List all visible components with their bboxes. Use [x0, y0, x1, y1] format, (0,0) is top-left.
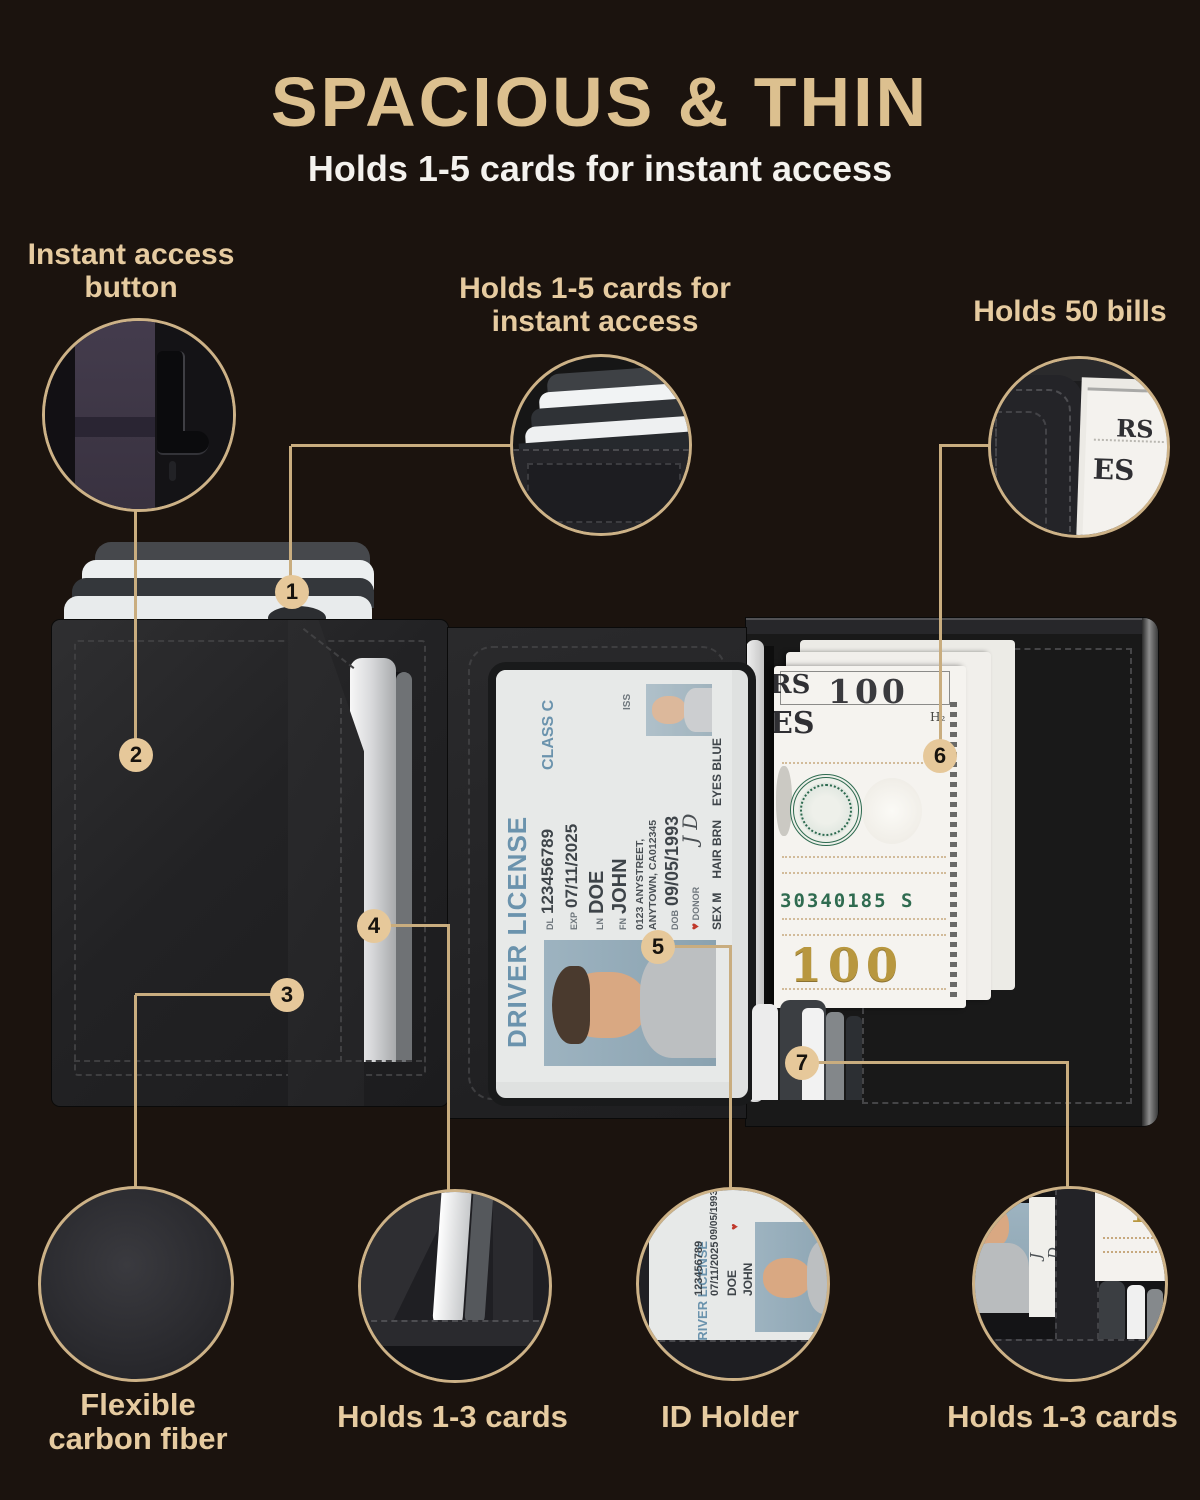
callout-holds-50-bills-label: Holds 50 bills: [930, 295, 1200, 328]
bill-script-line: [782, 762, 942, 764]
frag-card-gray: [1147, 1289, 1163, 1341]
bill-fragment-rs: RS: [774, 670, 810, 700]
frag-bill: 10: [1095, 1189, 1168, 1281]
zoom-bubble-instant-access: [42, 318, 236, 512]
connector-4-v: [447, 926, 450, 1191]
wallet-purple-spine: [75, 318, 157, 512]
badge-5: 5: [641, 930, 675, 964]
license-card: DRIVER LICENSE CLASS C DL 123456789 EXP …: [496, 670, 732, 1082]
connector-7-h: [802, 1061, 1069, 1064]
badge-2: 2: [119, 738, 153, 772]
callout-holds-1-5-label: Holds 1-5 cards for instant access: [420, 272, 770, 338]
corner-bill-es: ES: [1092, 453, 1135, 487]
bubble-edge-dark: [45, 321, 79, 509]
badge-6: 6: [923, 739, 957, 773]
license-ghost-photo: [646, 684, 712, 736]
license-dl-field: DL 123456789: [538, 829, 558, 930]
connector-3-h: [135, 993, 287, 996]
photo-hair: [552, 966, 590, 1044]
wallet-infographic: SPACIOUS & THIN Holds 1-5 cards for inst…: [0, 0, 1200, 1500]
bill-denomination-top: 100: [828, 672, 909, 711]
pocket-bottom-stitch: [74, 1060, 422, 1065]
frag-bill-line: [1103, 1237, 1168, 1239]
right-panel-top-plate: [746, 618, 1142, 634]
bill-script-line: [782, 934, 946, 936]
mini-donor-heart-icon: ♥: [729, 1223, 741, 1230]
access-button-lever: [157, 351, 185, 443]
bill-script-line: [782, 856, 946, 858]
wallet-left-flap: [52, 620, 448, 1106]
ghost-face: [652, 696, 686, 724]
mini-license: DRIVER LICENSE 123456789 07/11/2025 DOE …: [649, 1187, 830, 1360]
bill-denomination-gold: 100: [790, 938, 904, 992]
mini-license-ln: DOE: [725, 1270, 739, 1296]
connector-1-v: [289, 446, 292, 592]
bill-fragment-es: ES: [774, 706, 815, 741]
license-exp-field: EXP 07/11/2025: [562, 824, 582, 930]
license-photo: [544, 940, 716, 1066]
zoom-bubble-bills-corner: RS ES: [988, 356, 1170, 538]
license-bottom-strip: SEX M HAIR BRN EYES BLUE: [710, 738, 724, 930]
mini-license-dob: 09/05/1993: [709, 1190, 720, 1240]
license-window: DRIVER LICENSE CLASS C DL 123456789 EXP …: [488, 662, 756, 1106]
fan-pocket-stitch: [527, 463, 681, 523]
frag-shirt: [972, 1243, 1029, 1313]
access-button-foot: [157, 431, 209, 455]
license-class: CLASS C: [540, 700, 558, 770]
bill-watermark-oval: [862, 778, 922, 844]
zoom-bubble-id-holder: DRIVER LICENSE 123456789 07/11/2025 DOE …: [636, 1187, 830, 1381]
zoom-bubble-card-fan: [510, 354, 692, 536]
bill-pillar-left: [776, 766, 792, 836]
license-donor: ♥ DONOR: [688, 887, 702, 930]
frag-card-white2: [1127, 1285, 1145, 1341]
access-button-stem: [169, 461, 176, 481]
connector-2-v: [134, 503, 137, 755]
page-title: SPACIOUS & THIN: [0, 62, 1200, 142]
connector-7-v: [1066, 1063, 1069, 1188]
bill-script-line: [782, 872, 946, 874]
badge-4: 4: [357, 909, 391, 943]
mini-license-dl: 123456789: [693, 1241, 705, 1296]
frag-card-dark: [1099, 1281, 1125, 1341]
connector-6-h: [939, 444, 991, 447]
frag-bill-line2: [1103, 1251, 1168, 1253]
zoom-bubble-card-slot: [358, 1189, 552, 1383]
frag-face: [979, 1207, 1009, 1247]
right-pocket-card-5: [846, 1016, 862, 1100]
license-signature: J D: [678, 814, 702, 844]
slot-below-dark: [361, 1346, 549, 1383]
corner-bill-front: RS ES: [1082, 387, 1170, 538]
license-address: 0123 ANYSTREET, ANYTOWN, CA012345: [634, 820, 660, 930]
ghost-shirt: [684, 688, 712, 732]
badge-3: 3: [270, 978, 304, 1012]
callout-holds-1-3-right-label: Holds 1-3 cards: [920, 1400, 1200, 1434]
treasury-seal-icon: [790, 774, 862, 846]
bill-h2-mark: H₂: [930, 710, 945, 724]
corner-stitch-inner: [995, 411, 1047, 538]
connector-5-v: [729, 947, 732, 1189]
badge-1: 1: [275, 575, 309, 609]
frag-card-white: J D: [1029, 1197, 1055, 1317]
frag-leather-strip: [1055, 1189, 1099, 1339]
wallet-center-panel: DRIVER LICENSE CLASS C DL 123456789 EXP …: [448, 628, 746, 1118]
mini-license-exp: 07/11/2025: [709, 1242, 721, 1296]
callout-id-holder-label: ID Holder: [640, 1400, 820, 1434]
connector-1-h: [291, 444, 513, 447]
right-pocket-card-4: [826, 1012, 844, 1100]
connector-6-v: [939, 446, 942, 756]
pocket-gray-card: [396, 672, 412, 1062]
mini-shirt: [807, 1240, 830, 1314]
license-ln-field: LN DOE: [586, 871, 609, 930]
zoom-bubble-carbon-fiber: [38, 1186, 234, 1382]
callout-holds-1-3-left-label: Holds 1-3 cards: [310, 1400, 595, 1434]
id-holder-leather-band: [639, 1340, 827, 1381]
callout-flexible-label: Flexible carbon fiber: [0, 1388, 276, 1456]
bill-serial-number: 30340185 S: [780, 890, 914, 912]
pocket-edge-stitch-v: [340, 698, 345, 1062]
page-subtitle: Holds 1-5 cards for instant access: [0, 148, 1200, 190]
license-fn-field: FN JOHN: [609, 858, 632, 930]
callout-instant-access-label: Instant access button: [0, 238, 262, 304]
mini-license-fn: JOHN: [741, 1263, 755, 1296]
slot-dark-bg: [493, 1189, 533, 1324]
bill-front: RS 100 ES H₂ 30340185 S 100: [774, 666, 966, 1008]
license-title: DRIVER LICENSE: [502, 816, 533, 1048]
mini-face: [763, 1258, 811, 1298]
frag-bill-gold: 10: [1129, 1195, 1168, 1230]
frag-id-photo: [972, 1203, 1031, 1313]
bill-script-line: [782, 918, 946, 920]
metal-frame-edge: [1142, 618, 1158, 1126]
license-iss: ISS: [622, 694, 633, 710]
purple-band: [75, 417, 157, 437]
zoom-bubble-bills-cards: J D 10: [972, 1186, 1168, 1382]
badge-7: 7: [785, 1046, 819, 1080]
right-pocket-card-1: [752, 1004, 778, 1100]
photo-shirt: [640, 948, 716, 1058]
connector-3-v: [134, 995, 137, 1188]
frag-bottom-band: [975, 1339, 1165, 1381]
mini-license-photo: [755, 1222, 830, 1332]
donor-heart-icon: ♥: [688, 923, 702, 930]
